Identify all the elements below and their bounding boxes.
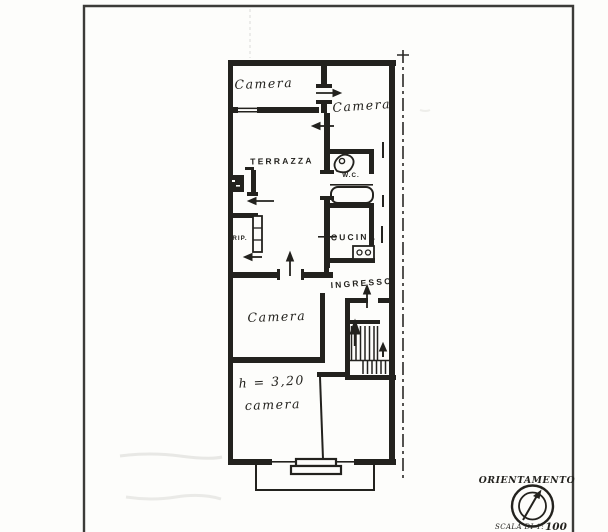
room-label-ingresso: INGRESSO <box>330 276 393 290</box>
wall-right <box>389 60 395 465</box>
room-label-camera-middle: Camera <box>247 308 306 325</box>
wall-wc-top <box>329 149 374 154</box>
orientation-block: ORIENTAMENTO SCALA DI 1:100 <box>479 475 575 532</box>
arrow-left-top-rooms <box>312 123 334 130</box>
arrow-entrance <box>364 285 371 308</box>
stove-icon <box>353 246 374 259</box>
bathtub-icon <box>331 187 373 203</box>
divider-line <box>320 377 323 459</box>
arrow-rip-door <box>244 254 262 261</box>
room-label-camera-top-left: Camera <box>234 75 293 92</box>
floor-plan-drawing: Camera Camera TERRAZZA W.C. CUCINA RIP. … <box>0 0 608 532</box>
wall-top <box>228 60 396 66</box>
room-label-cucina: CUCINA <box>331 232 377 243</box>
wall-bottom-right <box>354 459 396 465</box>
room-label-rip: RIP. <box>232 235 247 242</box>
room-label-terrazza: TERRAZZA <box>250 155 314 166</box>
room-label-wc: W.C. <box>342 172 359 179</box>
shaft-block <box>229 175 244 192</box>
toilet-icon <box>335 155 354 173</box>
room-label-camera-bottom: camera <box>245 396 302 413</box>
scale-label: SCALA DI 1:100 <box>495 521 568 532</box>
wall-bottom-left <box>228 459 272 465</box>
room-label-camera-top-right: Camera <box>332 96 392 115</box>
ceiling-height-note: h = 3,20 <box>238 372 305 390</box>
arrow-corridor-to-terrace <box>287 252 294 276</box>
arrow-terrace-door <box>248 198 274 205</box>
orientation-title: ORIENTAMENTO <box>479 475 575 486</box>
wall-left <box>228 60 233 465</box>
rip-door-column <box>253 216 262 252</box>
scanned-floor-plan-sheet: Camera Camera TERRAZZA W.C. CUCINA RIP. … <box>0 0 608 532</box>
arrow-stair-small <box>380 343 387 357</box>
arrow-right-top-rooms <box>316 90 341 97</box>
window-sill <box>291 459 341 474</box>
property-line <box>397 50 409 479</box>
